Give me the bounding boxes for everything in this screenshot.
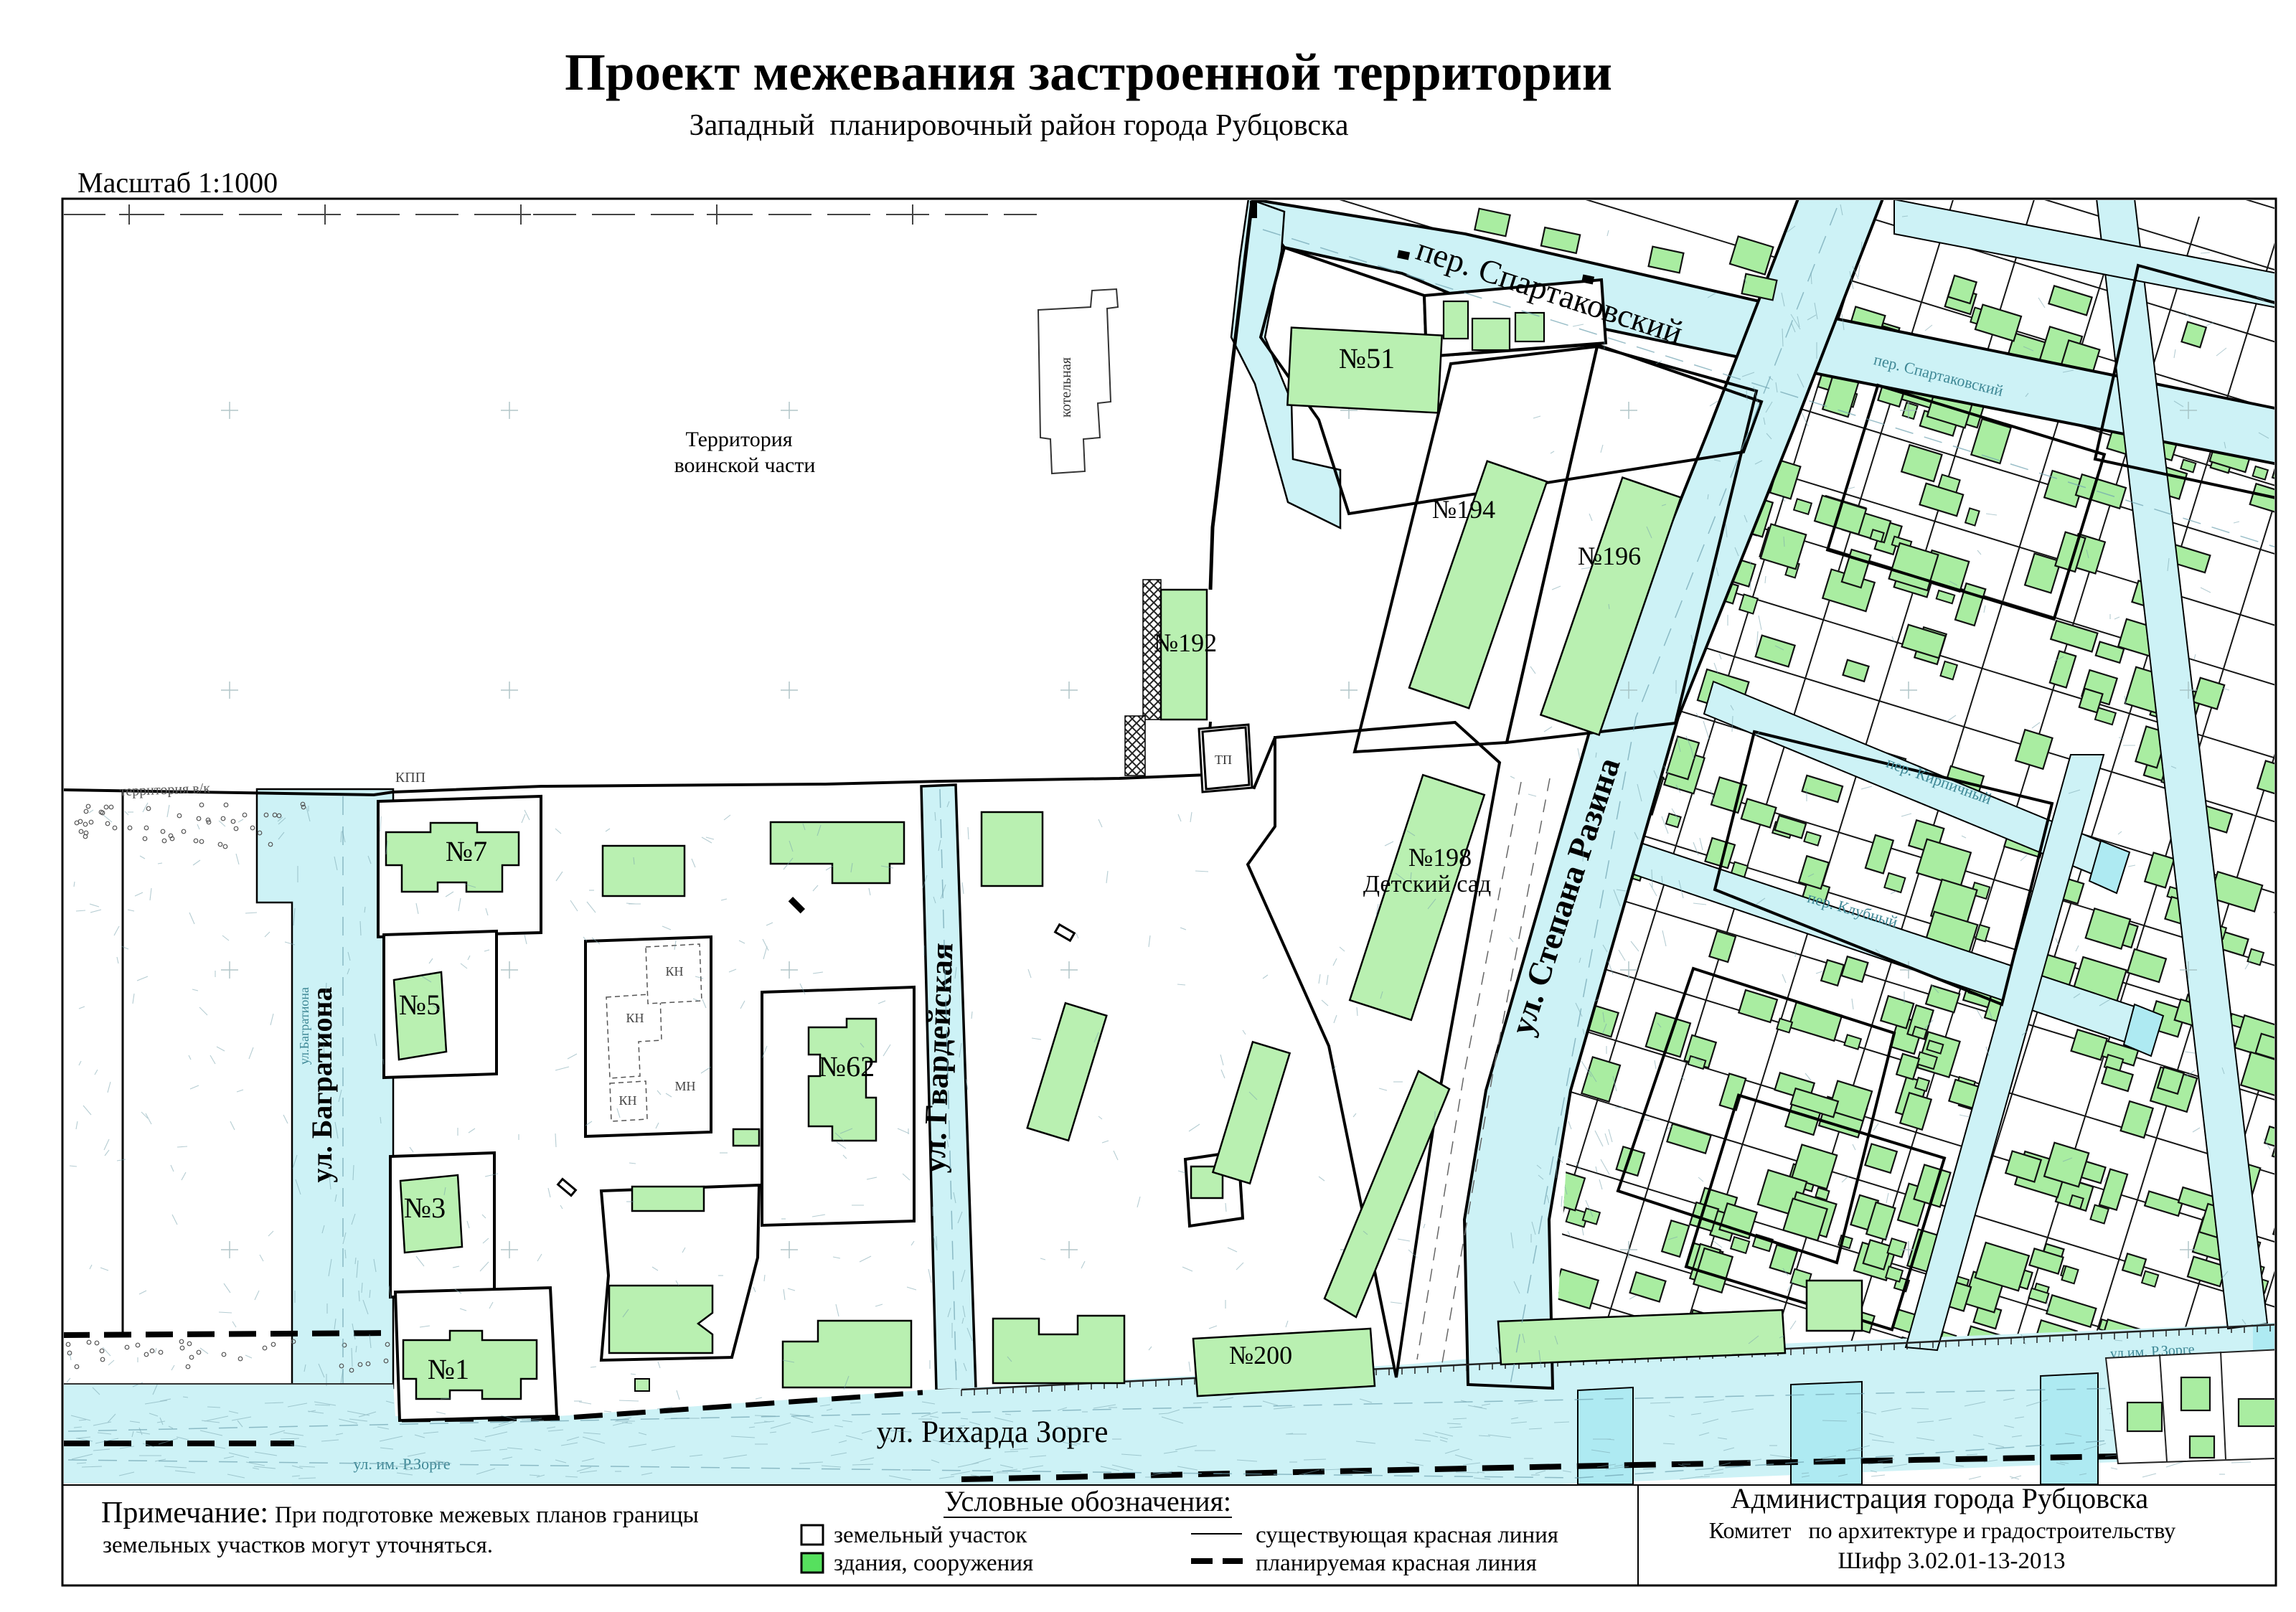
svg-text:Масштаб 1:1000: Масштаб 1:1000 <box>77 166 278 199</box>
svg-text:существующая красная линия: существующая красная линия <box>1256 1522 1558 1548</box>
svg-text:земельный участок: земельный участок <box>834 1522 1027 1548</box>
svg-text:При подготовке межевых планов: При подготовке межевых планов границы <box>275 1502 699 1528</box>
svg-text:котельная: котельная <box>1058 357 1074 418</box>
svg-text:№196: №196 <box>1578 542 1641 570</box>
svg-text:№200: №200 <box>1229 1341 1292 1370</box>
svg-text:№7: №7 <box>446 835 487 867</box>
svg-text:№51: №51 <box>1339 342 1395 374</box>
svg-text:МН: МН <box>674 1079 695 1093</box>
svg-text:Западный планировочный район: Западный планировочный район города Рубц… <box>690 109 1349 142</box>
svg-text:Комитет по архитектуре и гра: Комитет по архитектуре и градостроительс… <box>1709 1517 2175 1543</box>
svg-text:воинской части: воинской части <box>674 453 816 477</box>
svg-text:ул. Рихарда Зорге: ул. Рихарда Зорге <box>877 1415 1109 1449</box>
svg-text:Детский сад: Детский сад <box>1363 871 1491 897</box>
svg-text:здания, сооружения: здания, сооружения <box>834 1550 1033 1576</box>
svg-text:Условные обозначения:: Условные обозначения: <box>944 1485 1231 1517</box>
svg-text:№198: №198 <box>1408 843 1472 872</box>
svg-text:Проект межевания застроенной т: Проект межевания застроенной территории <box>565 43 1612 101</box>
svg-text:№5: №5 <box>399 989 441 1021</box>
svg-text:КН: КН <box>665 964 683 979</box>
svg-text:№194: №194 <box>1432 495 1495 524</box>
svg-text:№192: №192 <box>1154 628 1217 657</box>
svg-text:территория в/к: территория в/к <box>119 781 210 799</box>
svg-text:земельных участков могут уточн: земельных участков могут уточняться. <box>103 1532 493 1558</box>
svg-text:КН: КН <box>618 1093 636 1108</box>
svg-text:№3: №3 <box>404 1192 446 1224</box>
svg-text:Администрация города Рубцовска: Администрация города Рубцовска <box>1731 1482 2149 1514</box>
svg-text:Примечание:: Примечание: <box>101 1496 268 1529</box>
svg-text:№62: №62 <box>819 1050 875 1083</box>
svg-text:ул.Багратиона: ул.Багратиона <box>297 987 311 1065</box>
svg-text:Территория: Территория <box>685 428 792 451</box>
svg-text:КПП: КПП <box>395 770 425 786</box>
svg-text:планируемая красная линия: планируемая красная линия <box>1256 1550 1537 1576</box>
svg-text:ТП: ТП <box>1215 753 1232 767</box>
svg-text:Шифр 3.02.01-13-2013: Шифр 3.02.01-13-2013 <box>1838 1548 2065 1574</box>
svg-text:КН: КН <box>626 1011 644 1025</box>
svg-text:№1: №1 <box>428 1353 469 1385</box>
